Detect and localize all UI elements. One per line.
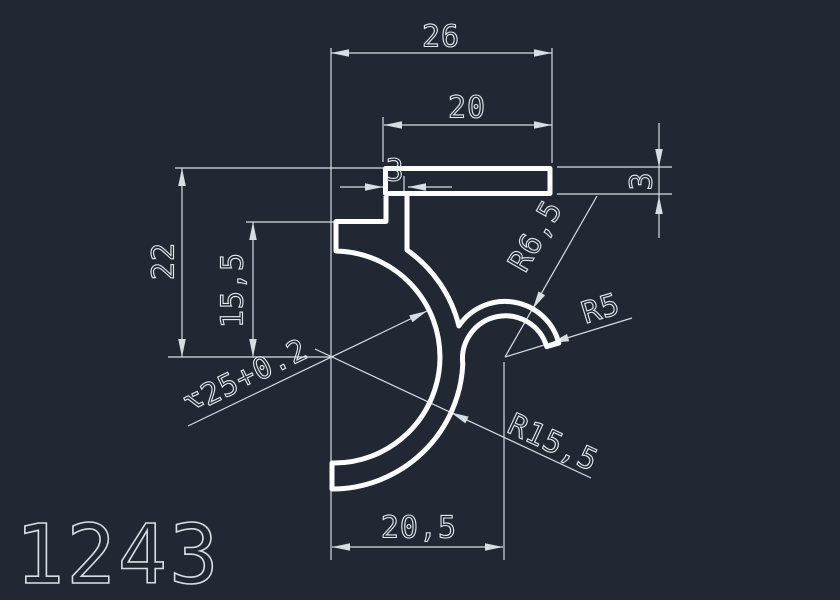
arrow-bottom-width-right <box>485 543 503 551</box>
label-bore-center-height: 15,5 <box>216 252 251 328</box>
arrow-step-offset-left <box>365 183 383 191</box>
label-bottom-width: 20,5 <box>381 511 457 546</box>
arrow-flange-thickness-bottom <box>655 196 663 214</box>
label-flange-length: 20 <box>448 91 486 126</box>
arrow-flange-length-right <box>534 121 552 129</box>
technical-drawing: 26 20 3 3 22 15,5 20,5 ⌥25+0.2 R15,5 R6,… <box>0 0 840 600</box>
part-number: 1243 <box>15 508 220 600</box>
arrow-total-height-bottom <box>178 339 186 357</box>
label-total-height: 22 <box>147 242 182 280</box>
cad-viewport: 26 20 3 3 22 15,5 20,5 ⌥25+0.2 R15,5 R6,… <box>0 0 840 600</box>
label-flange-thickness: 3 <box>625 171 660 190</box>
label-hook-outer-radius: R6,5 <box>502 194 570 278</box>
arrow-step-offset-right <box>408 183 426 191</box>
label-hook-inner-radius: R5 <box>578 287 625 332</box>
arrow-bore-height-top <box>249 222 257 240</box>
arrow-flange-thickness-top <box>655 149 663 167</box>
arrow-hook-outer-radius <box>533 291 545 309</box>
arrow-flange-length-left <box>384 121 402 129</box>
label-bore-diameter: ⌥25+0.2 <box>178 332 313 422</box>
arrow-bore-diameter <box>409 311 427 322</box>
label-total-width: 26 <box>422 20 460 55</box>
label-outer-radius: R15,5 <box>502 407 603 479</box>
arrow-total-height-top <box>178 168 186 186</box>
arrow-outer-radius <box>451 412 469 423</box>
arrow-total-width-right <box>534 49 552 57</box>
profile-top-flange <box>386 169 551 194</box>
label-step-offset: 3 <box>385 154 404 189</box>
arrow-total-width-left <box>331 49 349 57</box>
arrow-bottom-width-left <box>332 543 350 551</box>
